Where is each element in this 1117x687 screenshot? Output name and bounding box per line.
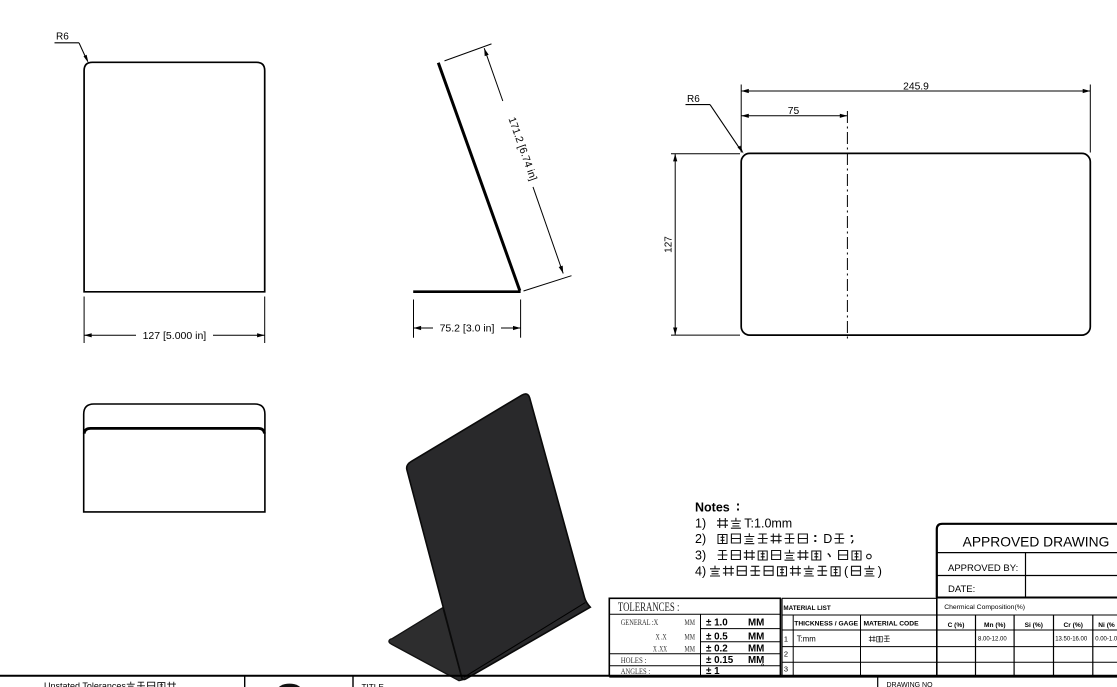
svg-text:DATE:: DATE: — [948, 584, 975, 595]
svg-text:TITLE: TITLE — [362, 683, 385, 687]
svg-text:X .X: X .X — [656, 632, 667, 641]
svg-text:3: 3 — [784, 665, 788, 674]
svg-text:± 0.5: ± 0.5 — [706, 631, 728, 642]
svg-text:APPROVED DRAWING: APPROVED DRAWING — [963, 534, 1110, 549]
svg-text:0.00-1.00: 0.00-1.00 — [1095, 637, 1117, 643]
svg-text:T:1.0mm: T:1.0mm — [744, 517, 792, 531]
svg-text:MM: MM — [748, 631, 764, 642]
svg-text:Cr (%): Cr (%) — [1063, 622, 1082, 629]
svg-text:C (%): C (%) — [948, 622, 965, 629]
svg-text:Mn (%): Mn (%) — [984, 622, 1006, 629]
svg-text:THICKNESS / GAGE: THICKNESS / GAGE — [794, 621, 858, 628]
svg-text:4): 4) — [695, 564, 706, 578]
svg-text:1): 1) — [695, 517, 706, 531]
svg-text:D: D — [823, 532, 832, 546]
svg-text:DRAWING NO: DRAWING NO — [887, 682, 934, 687]
svg-text:245.9: 245.9 — [903, 81, 929, 92]
svg-text:75: 75 — [788, 106, 800, 117]
svg-text:MM: MM — [685, 618, 696, 627]
svg-text:MM: MM — [748, 618, 764, 629]
svg-text:75.2 [3.0 in]: 75.2 [3.0 in] — [440, 323, 495, 335]
svg-text:Si (%): Si (%) — [1025, 622, 1043, 629]
svg-text:): ) — [878, 564, 882, 578]
svg-text:HOLES :: HOLES : — [621, 656, 647, 665]
svg-text:MATERIAL CODE: MATERIAL CODE — [863, 621, 919, 628]
svg-text:R6: R6 — [687, 94, 700, 105]
svg-text:MATERIAL LIST: MATERIAL LIST — [783, 605, 830, 612]
svg-text:3): 3) — [695, 549, 706, 563]
svg-text:T:mm: T:mm — [797, 634, 816, 643]
svg-text:8.00-12.00: 8.00-12.00 — [978, 637, 1007, 643]
svg-text:2: 2 — [784, 650, 788, 659]
svg-text:MM: MM — [685, 645, 696, 654]
svg-text:127: 127 — [663, 236, 674, 253]
svg-text:R6: R6 — [56, 32, 69, 43]
svg-text:Unstated Tolerances: Unstated Tolerances — [44, 681, 126, 687]
svg-text:TOLERANCES :: TOLERANCES : — [618, 600, 680, 614]
svg-text:± 0.2: ± 0.2 — [706, 643, 728, 654]
svg-text:Notes: Notes — [695, 501, 730, 515]
svg-text:X .XX: X .XX — [653, 645, 667, 654]
svg-text:Ni (%: Ni (% — [1098, 622, 1115, 629]
svg-text:± 1.0: ± 1.0 — [706, 618, 728, 629]
svg-text:± 0.15: ± 0.15 — [706, 655, 734, 666]
svg-text:APPROVED BY:: APPROVED BY: — [948, 563, 1018, 574]
svg-text:MM: MM — [748, 643, 764, 654]
svg-text:1: 1 — [784, 634, 788, 643]
svg-text:2): 2) — [695, 532, 706, 546]
svg-text:GENERAL :X: GENERAL :X — [621, 618, 659, 627]
svg-text:127 [5.000 in]: 127 [5.000 in] — [143, 330, 207, 342]
svg-text:13.50-16.00: 13.50-16.00 — [1055, 637, 1088, 643]
svg-text:°: ° — [761, 663, 764, 672]
svg-text:Chermical Composition(%): Chermical Composition(%) — [944, 604, 1025, 611]
svg-text:MM: MM — [685, 632, 696, 641]
